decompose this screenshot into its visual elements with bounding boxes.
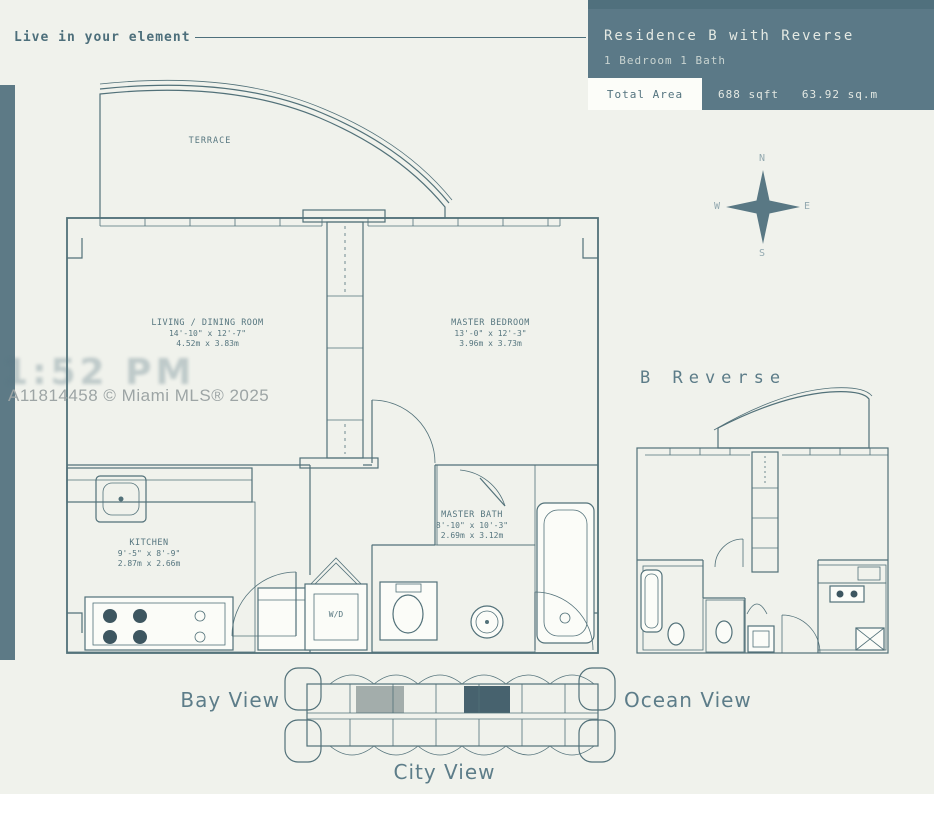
residence-header: Residence B with Reverse 1 Bedroom 1 Bat… bbox=[588, 0, 934, 110]
bedroom-door-arc bbox=[372, 400, 435, 463]
master-bath-label: MASTER BATH 8'-10" x 10'-3" 2.69m x 3.12… bbox=[422, 510, 522, 540]
stove bbox=[85, 597, 233, 650]
kitchen-label: KITCHEN 9'-5" x 8'-9" 2.87m x 2.66m bbox=[95, 538, 203, 568]
terrace bbox=[100, 80, 452, 218]
reverse-toilet bbox=[668, 623, 684, 645]
reverse-closet-column bbox=[752, 452, 778, 572]
keyplan-unit-dark bbox=[464, 686, 510, 713]
reverse-unit-outline bbox=[637, 448, 888, 653]
bathtub bbox=[537, 503, 594, 643]
ocean-view-label: Ocean View bbox=[624, 688, 752, 712]
terrace-label: TERRACE bbox=[160, 136, 260, 146]
mls-watermark: A11814458 © Miami MLS® 2025 bbox=[8, 386, 269, 406]
master-bath bbox=[372, 465, 594, 652]
toilet bbox=[380, 582, 437, 640]
reverse-terrace bbox=[714, 388, 872, 448]
b-reverse-label: B Reverse bbox=[640, 368, 786, 388]
city-view-label: City View bbox=[352, 760, 537, 784]
compass-star bbox=[726, 170, 800, 244]
building-keyplan bbox=[285, 668, 615, 762]
keyplan-unit-light bbox=[356, 686, 404, 713]
reverse-arch bbox=[747, 604, 767, 614]
reverse-kitchen bbox=[818, 565, 886, 650]
corner-columns bbox=[67, 238, 598, 633]
keyplan-balconies-top bbox=[330, 675, 594, 684]
total-area-label: Total Area bbox=[588, 78, 702, 110]
residence-title: Residence B with Reverse bbox=[604, 28, 854, 44]
plan-linework bbox=[0, 0, 934, 813]
keyplan-east-wing bbox=[579, 668, 615, 762]
header-top-strip bbox=[588, 0, 934, 9]
washer-dryer bbox=[305, 558, 367, 650]
keyplan-bar bbox=[307, 684, 598, 746]
keyplan-west-wing bbox=[285, 668, 321, 762]
total-area-value: 688 sqft 63.92 sq.m bbox=[718, 88, 878, 101]
bath-sink bbox=[471, 606, 503, 638]
master-bedroom-label: MASTER BEDROOM 13'-0" x 12'-3" 3.96m x 3… bbox=[408, 318, 573, 348]
reverse-toilet-2 bbox=[716, 621, 732, 643]
bath-door-arc bbox=[460, 470, 505, 506]
residence-specs: 1 Bedroom 1 Bath bbox=[604, 54, 726, 67]
compass-west-label: W bbox=[714, 201, 720, 212]
tagline: Live in your element bbox=[14, 30, 191, 45]
keyplan-balconies-bottom bbox=[330, 746, 594, 755]
floor-plan-sheet: Live in your element Residence B with Re… bbox=[0, 0, 934, 813]
tagline-rule bbox=[195, 37, 586, 38]
compass-east-label: E bbox=[804, 201, 810, 212]
compass-north-label: N bbox=[759, 153, 765, 164]
bottom-margin bbox=[0, 794, 934, 813]
tagline-row: Live in your element bbox=[14, 30, 586, 45]
living-room-label: LIVING / DINING ROOM 14'-10" x 12'-7" 4.… bbox=[125, 318, 290, 348]
bay-view-label: Bay View bbox=[178, 688, 280, 712]
reverse-vanity bbox=[748, 626, 774, 652]
kitchen-counter bbox=[258, 588, 308, 650]
reverse-bathtub bbox=[641, 570, 662, 632]
reverse-floor-plan bbox=[637, 388, 888, 653]
washer-dryer-label: W/D bbox=[320, 610, 352, 619]
compass-south-label: S bbox=[759, 248, 765, 259]
